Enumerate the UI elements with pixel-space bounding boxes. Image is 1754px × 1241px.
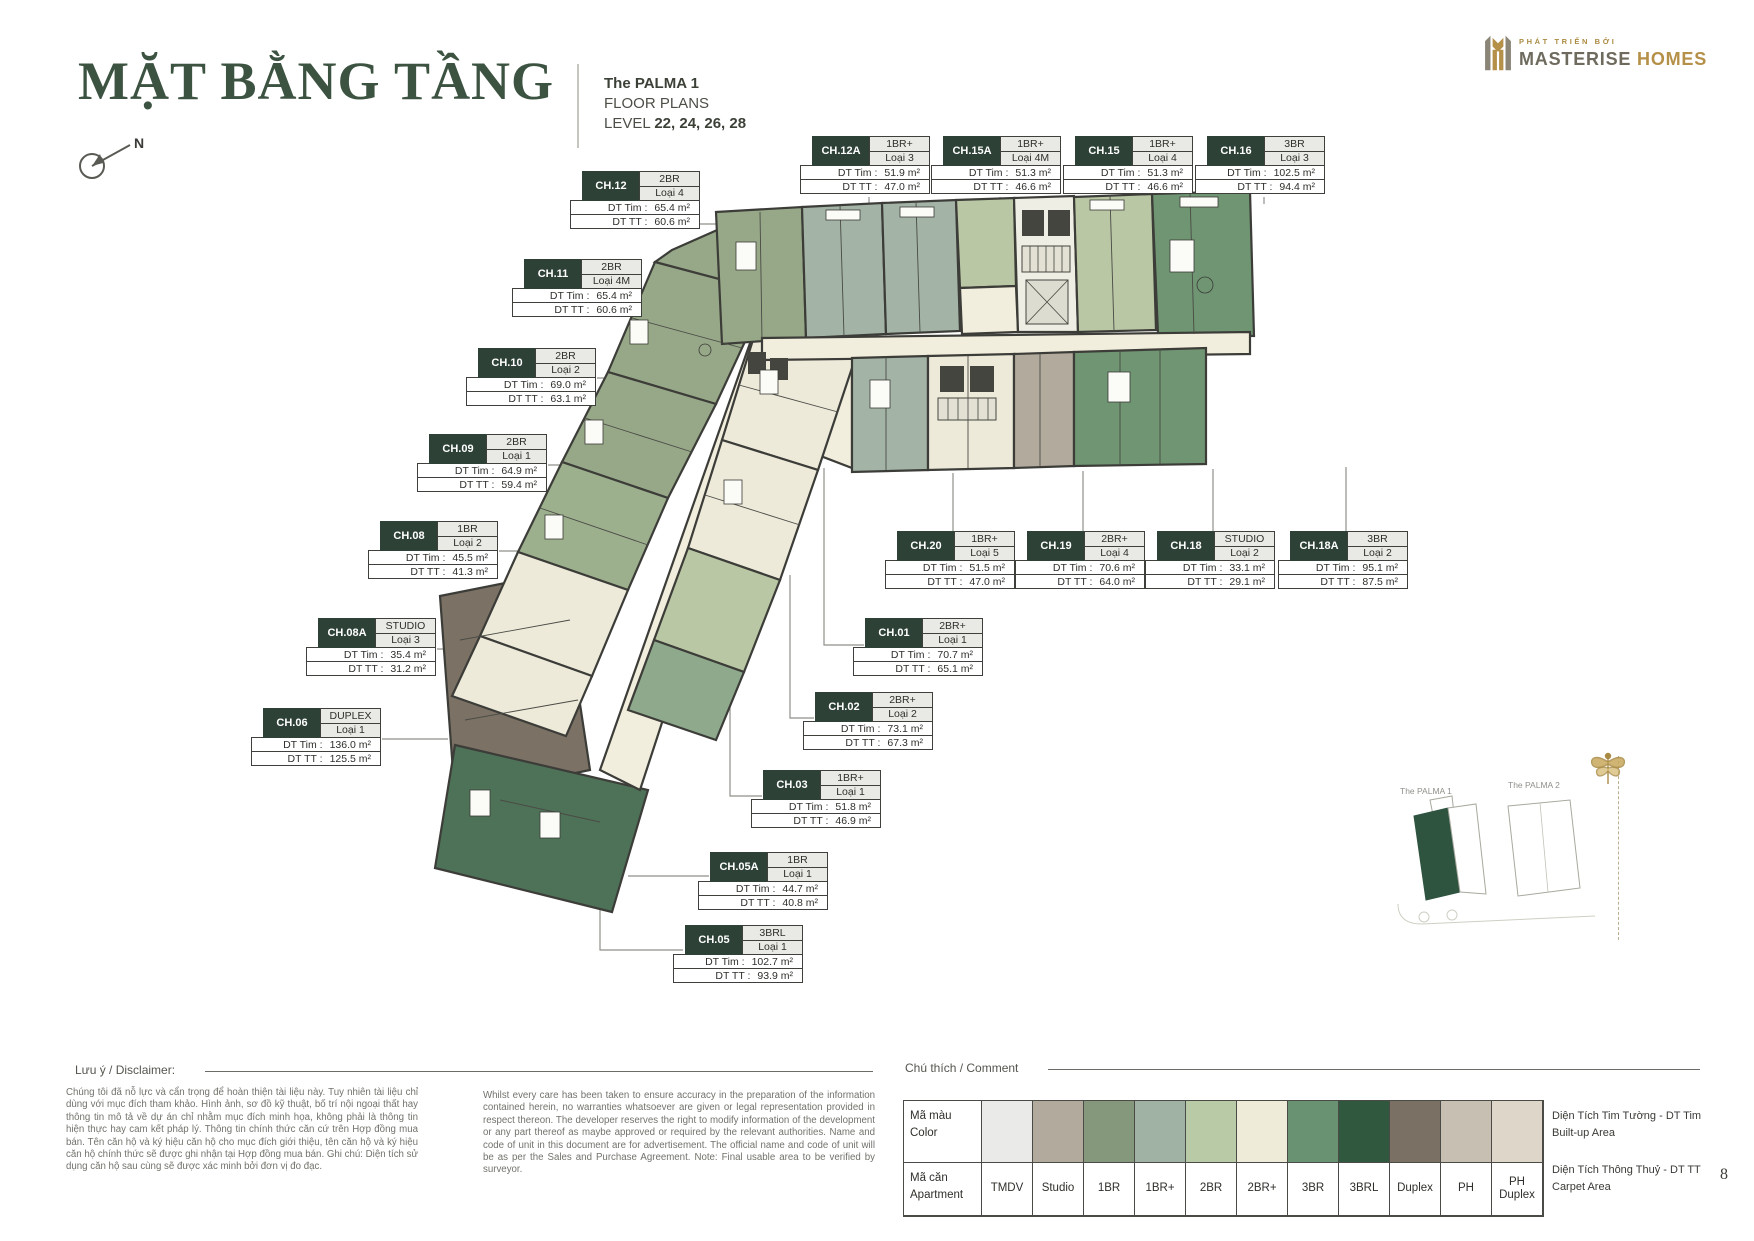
- dt-tim-value: 65.4 m²: [596, 290, 632, 302]
- unit-variant: Loại 5: [954, 546, 1015, 562]
- dt-tim-label: DT Tim :: [891, 649, 930, 661]
- unit-dt-tim-row: DT Tim : 35.4 m²: [306, 647, 436, 662]
- unit-dt-tim-row: DT Tim : 65.4 m²: [512, 288, 642, 303]
- dt-tt-label: DT TT :: [1237, 181, 1272, 193]
- unit-label-CH.05: CH.05 3BRL Loại 1 DT Tim : 102.7 m² DT T…: [685, 925, 803, 983]
- dt-tim-label: DT Tim :: [969, 167, 1008, 179]
- unit-variant: Loại 1: [820, 785, 881, 801]
- dt-tt-value: 46.6 m²: [1015, 181, 1051, 193]
- dt-tim-label: DT Tim :: [455, 465, 494, 477]
- dt-tim-value: 33.1 m²: [1229, 562, 1265, 574]
- dt-tt-value: 59.4 m²: [501, 479, 537, 491]
- unit-label-CH.20: CH.20 1BR+ Loại 5 DT Tim : 51.5 m² DT TT…: [897, 531, 1015, 589]
- unit-dt-tt-row: DT TT : 47.0 m²: [885, 574, 1015, 589]
- unit-code: CH.02: [815, 692, 873, 722]
- unit-code: CH.05A: [710, 852, 768, 882]
- dt-tim-label: DT Tim :: [705, 956, 744, 968]
- dt-tt-label: DT TT :: [288, 753, 323, 765]
- unit-type: 2BR+: [1084, 531, 1145, 547]
- dt-tt-label: DT TT :: [1187, 576, 1222, 588]
- unit-dt-tt-row: DT TT : 40.8 m²: [698, 895, 828, 910]
- dt-tim-label: DT Tim :: [923, 562, 962, 574]
- unit-label-CH.02: CH.02 2BR+ Loại 2 DT Tim : 73.1 m² DT TT…: [815, 692, 933, 750]
- unit-type: 3BR: [1264, 136, 1325, 152]
- dt-tt-value: 60.6 m²: [654, 216, 690, 228]
- unit-code: CH.10: [478, 348, 536, 378]
- unit-dt-tim-row: DT Tim : 70.7 m²: [853, 647, 983, 662]
- dt-tim-value: 70.7 m²: [937, 649, 973, 661]
- unit-dt-tim-row: DT Tim : 51.3 m²: [931, 165, 1061, 180]
- unit-code: CH.11: [524, 259, 582, 289]
- unit-code: CH.12: [582, 171, 640, 201]
- unit-type: 2BR: [639, 171, 700, 187]
- unit-variant: Loại 3: [375, 633, 436, 649]
- dt-tt-value: 47.0 m²: [884, 181, 920, 193]
- dt-tim-label: DT Tim :: [504, 379, 543, 391]
- unit-type: 2BR+: [872, 692, 933, 708]
- unit-label-CH.10: CH.10 2BR Loại 2 DT Tim : 69.0 m² DT TT …: [478, 348, 596, 406]
- dt-tim-value: 35.4 m²: [390, 649, 426, 661]
- unit-code: CH.09: [429, 434, 487, 464]
- unit-variant: Loại 3: [1264, 151, 1325, 167]
- unit-type: 1BR+: [1000, 136, 1061, 152]
- dt-tt-value: 41.3 m²: [452, 566, 488, 578]
- unit-type: DUPLEX: [320, 708, 381, 724]
- dt-tt-label: DT TT :: [348, 663, 383, 675]
- unit-variant: Loại 2: [437, 536, 498, 552]
- dt-tt-value: 87.5 m²: [1362, 576, 1398, 588]
- dt-tim-label: DT Tim :: [1053, 562, 1092, 574]
- unit-dt-tim-row: DT Tim : 51.8 m²: [751, 799, 881, 814]
- unit-label-CH.06: CH.06 DUPLEX Loại 1 DT Tim : 136.0 m² DT…: [263, 708, 381, 766]
- dt-tim-label: DT Tim :: [406, 552, 445, 564]
- dt-tt-value: 46.6 m²: [1147, 181, 1183, 193]
- dt-tt-value: 29.1 m²: [1229, 576, 1265, 588]
- dt-tim-label: DT Tim :: [550, 290, 589, 302]
- dt-tt-value: 64.0 m²: [1099, 576, 1135, 588]
- unit-type: 1BR: [767, 852, 828, 868]
- unit-dt-tt-row: DT TT : 64.0 m²: [1015, 574, 1145, 589]
- unit-variant: Loại 4: [1132, 151, 1193, 167]
- unit-variant: Loại 2: [1214, 546, 1275, 562]
- unit-type: 3BRL: [742, 925, 803, 941]
- dt-tim-value: 69.0 m²: [550, 379, 586, 391]
- unit-dt-tt-row: DT TT : 94.4 m²: [1195, 179, 1325, 194]
- unit-variant: Loại 1: [767, 867, 828, 883]
- unit-dt-tim-row: DT Tim : 64.9 m²: [417, 463, 547, 478]
- dt-tt-value: 67.3 m²: [887, 737, 923, 749]
- unit-label-CH.19: CH.19 2BR+ Loại 4 DT Tim : 70.6 m² DT TT…: [1027, 531, 1145, 589]
- unit-label-CH.08: CH.08 1BR Loại 2 DT Tim : 45.5 m² DT TT …: [380, 521, 498, 579]
- dt-tim-value: 65.4 m²: [654, 202, 690, 214]
- dt-tt-label: DT TT :: [554, 304, 589, 316]
- unit-variant: Loại 4: [639, 186, 700, 202]
- dt-tim-label: DT Tim :: [841, 723, 880, 735]
- unit-type: 1BR+: [954, 531, 1015, 547]
- unit-dt-tt-row: DT TT : 87.5 m²: [1278, 574, 1408, 589]
- unit-dt-tim-row: DT Tim : 102.5 m²: [1195, 165, 1325, 180]
- dt-tim-value: 136.0 m²: [330, 739, 371, 751]
- dt-tt-label: DT TT :: [927, 576, 962, 588]
- dt-tt-label: DT TT :: [508, 393, 543, 405]
- unit-dt-tim-row: DT Tim : 136.0 m²: [251, 737, 381, 752]
- unit-dt-tim-row: DT Tim : 51.5 m²: [885, 560, 1015, 575]
- unit-type: STUDIO: [375, 618, 436, 634]
- unit-variant: Loại 3: [869, 151, 930, 167]
- dt-tim-value: 51.9 m²: [884, 167, 920, 179]
- dt-tt-label: DT TT :: [1057, 576, 1092, 588]
- unit-type: 1BR: [437, 521, 498, 537]
- unit-dt-tt-row: DT TT : 93.9 m²: [673, 968, 803, 983]
- unit-label-CH.12A: CH.12A 1BR+ Loại 3 DT Tim : 51.9 m² DT T…: [812, 136, 930, 194]
- dt-tt-value: 125.5 m²: [330, 753, 371, 765]
- unit-dt-tt-row: DT TT : 31.2 m²: [306, 661, 436, 676]
- unit-dt-tt-row: DT TT : 60.6 m²: [570, 214, 700, 229]
- dt-tim-value: 102.5 m²: [1274, 167, 1315, 179]
- unit-label-CH.05A: CH.05A 1BR Loại 1 DT Tim : 44.7 m² DT TT…: [710, 852, 828, 910]
- unit-code: CH.03: [763, 770, 821, 800]
- unit-type: 2BR: [486, 434, 547, 450]
- unit-label-CH.03: CH.03 1BR+ Loại 1 DT Tim : 51.8 m² DT TT…: [763, 770, 881, 828]
- dt-tim-value: 51.3 m²: [1015, 167, 1051, 179]
- unit-code: CH.01: [865, 618, 923, 648]
- dt-tim-value: 51.3 m²: [1147, 167, 1183, 179]
- dt-tt-label: DT TT :: [895, 663, 930, 675]
- unit-dt-tim-row: DT Tim : 102.7 m²: [673, 954, 803, 969]
- unit-code: CH.15: [1075, 136, 1133, 166]
- dt-tim-label: DT Tim :: [608, 202, 647, 214]
- unit-type: 1BR+: [820, 770, 881, 786]
- dt-tt-label: DT TT :: [793, 815, 828, 827]
- unit-dt-tt-row: DT TT : 46.6 m²: [1063, 179, 1193, 194]
- unit-variant: Loại 2: [1347, 546, 1408, 562]
- unit-label-CH.15A: CH.15A 1BR+ Loại 4M DT Tim : 51.3 m² DT …: [943, 136, 1061, 194]
- unit-dt-tim-row: DT Tim : 33.1 m²: [1145, 560, 1275, 575]
- unit-variant: Loại 4: [1084, 546, 1145, 562]
- unit-code: CH.12A: [812, 136, 870, 166]
- dt-tt-label: DT TT :: [1105, 181, 1140, 193]
- unit-code: CH.08: [380, 521, 438, 551]
- dt-tim-value: 73.1 m²: [887, 723, 923, 735]
- unit-type: 2BR: [581, 259, 642, 275]
- dt-tim-value: 44.7 m²: [782, 883, 818, 895]
- dt-tt-value: 60.6 m²: [596, 304, 632, 316]
- unit-dt-tt-row: DT TT : 59.4 m²: [417, 477, 547, 492]
- dt-tt-label: DT TT :: [459, 479, 494, 491]
- unit-variant: Loại 2: [535, 363, 596, 379]
- dt-tt-value: 46.9 m²: [835, 815, 871, 827]
- dt-tim-value: 64.9 m²: [501, 465, 537, 477]
- unit-code: CH.18A: [1290, 531, 1348, 561]
- unit-code: CH.18: [1157, 531, 1215, 561]
- unit-dt-tt-row: DT TT : 67.3 m²: [803, 735, 933, 750]
- dt-tim-value: 51.5 m²: [969, 562, 1005, 574]
- unit-code: CH.16: [1207, 136, 1265, 166]
- dt-tt-value: 65.1 m²: [937, 663, 973, 675]
- unit-dt-tt-row: DT TT : 29.1 m²: [1145, 574, 1275, 589]
- unit-dt-tim-row: DT Tim : 65.4 m²: [570, 200, 700, 215]
- unit-dt-tt-row: DT TT : 46.6 m²: [931, 179, 1061, 194]
- unit-label-CH.11: CH.11 2BR Loại 4M DT Tim : 65.4 m² DT TT…: [524, 259, 642, 317]
- unit-label-CH.09: CH.09 2BR Loại 1 DT Tim : 64.9 m² DT TT …: [429, 434, 547, 492]
- dt-tt-label: DT TT :: [410, 566, 445, 578]
- unit-dt-tim-row: DT Tim : 70.6 m²: [1015, 560, 1145, 575]
- dt-tt-label: DT TT :: [715, 970, 750, 982]
- unit-code: CH.08A: [318, 618, 376, 648]
- unit-dt-tim-row: DT Tim : 44.7 m²: [698, 881, 828, 896]
- unit-code: CH.15A: [943, 136, 1001, 166]
- dt-tim-label: DT Tim :: [838, 167, 877, 179]
- unit-dt-tim-row: DT Tim : 51.9 m²: [800, 165, 930, 180]
- unit-label-CH.15: CH.15 1BR+ Loại 4 DT Tim : 51.3 m² DT TT…: [1075, 136, 1193, 194]
- unit-dt-tt-row: DT TT : 125.5 m²: [251, 751, 381, 766]
- dt-tim-label: DT Tim :: [1316, 562, 1355, 574]
- unit-dt-tim-row: DT Tim : 69.0 m²: [466, 377, 596, 392]
- dt-tt-value: 94.4 m²: [1279, 181, 1315, 193]
- unit-label-CH.16: CH.16 3BR Loại 3 DT Tim : 102.5 m² DT TT…: [1207, 136, 1325, 194]
- dt-tim-label: DT Tim :: [736, 883, 775, 895]
- unit-label-CH.18A: CH.18A 3BR Loại 2 DT Tim : 95.1 m² DT TT…: [1290, 531, 1408, 589]
- floor-plan-page: MẶT BẰNG TẦNG The PALMA 1 FLOOR PLANS LE…: [0, 0, 1754, 1241]
- unit-dt-tt-row: DT TT : 41.3 m²: [368, 564, 498, 579]
- dt-tim-value: 102.7 m²: [752, 956, 793, 968]
- dt-tim-label: DT Tim :: [1227, 167, 1266, 179]
- unit-code: CH.20: [897, 531, 955, 561]
- dt-tt-label: DT TT :: [740, 897, 775, 909]
- dt-tt-label: DT TT :: [612, 216, 647, 228]
- unit-variant: Loại 1: [486, 449, 547, 465]
- unit-variant: Loại 4M: [581, 274, 642, 290]
- unit-type: 3BR: [1347, 531, 1408, 547]
- unit-type: 2BR+: [922, 618, 983, 634]
- unit-variant: Loại 1: [922, 633, 983, 649]
- dt-tt-value: 93.9 m²: [757, 970, 793, 982]
- unit-code: CH.19: [1027, 531, 1085, 561]
- dt-tim-value: 45.5 m²: [452, 552, 488, 564]
- unit-type: STUDIO: [1214, 531, 1275, 547]
- unit-label-CH.18: CH.18 STUDIO Loại 2 DT Tim : 33.1 m² DT …: [1157, 531, 1275, 589]
- unit-variant: Loại 4M: [1000, 151, 1061, 167]
- dt-tim-label: DT Tim :: [789, 801, 828, 813]
- unit-code: CH.05: [685, 925, 743, 955]
- dt-tt-label: DT TT :: [1320, 576, 1355, 588]
- dt-tt-label: DT TT :: [845, 737, 880, 749]
- dt-tim-label: DT Tim :: [1183, 562, 1222, 574]
- unit-variant: Loại 1: [742, 940, 803, 956]
- unit-code: CH.06: [263, 708, 321, 738]
- unit-dt-tt-row: DT TT : 63.1 m²: [466, 391, 596, 406]
- dt-tt-value: 63.1 m²: [550, 393, 586, 405]
- dt-tim-value: 95.1 m²: [1362, 562, 1398, 574]
- unit-dt-tt-row: DT TT : 60.6 m²: [512, 302, 642, 317]
- unit-dt-tim-row: DT Tim : 73.1 m²: [803, 721, 933, 736]
- unit-variant: Loại 2: [872, 707, 933, 723]
- unit-type: 1BR+: [869, 136, 930, 152]
- dt-tt-value: 31.2 m²: [390, 663, 426, 675]
- dt-tim-label: DT Tim :: [283, 739, 322, 751]
- unit-dt-tt-row: DT TT : 46.9 m²: [751, 813, 881, 828]
- dt-tt-value: 40.8 m²: [782, 897, 818, 909]
- unit-dt-tim-row: DT Tim : 51.3 m²: [1063, 165, 1193, 180]
- unit-variant: Loại 1: [320, 723, 381, 739]
- dt-tt-value: 47.0 m²: [969, 576, 1005, 588]
- dt-tim-value: 70.6 m²: [1099, 562, 1135, 574]
- unit-type: 1BR+: [1132, 136, 1193, 152]
- unit-label-CH.12: CH.12 2BR Loại 4 DT Tim : 65.4 m² DT TT …: [582, 171, 700, 229]
- dt-tim-label: DT Tim :: [1101, 167, 1140, 179]
- unit-dt-tt-row: DT TT : 65.1 m²: [853, 661, 983, 676]
- dt-tt-label: DT TT :: [842, 181, 877, 193]
- dt-tim-value: 51.8 m²: [835, 801, 871, 813]
- unit-label-CH.01: CH.01 2BR+ Loại 1 DT Tim : 70.7 m² DT TT…: [865, 618, 983, 676]
- dt-tt-label: DT TT :: [973, 181, 1008, 193]
- unit-type: 2BR: [535, 348, 596, 364]
- unit-dt-tim-row: DT Tim : 45.5 m²: [368, 550, 498, 565]
- dt-tim-label: DT Tim :: [344, 649, 383, 661]
- unit-dt-tt-row: DT TT : 47.0 m²: [800, 179, 930, 194]
- unit-label-CH.08A: CH.08A STUDIO Loại 3 DT Tim : 35.4 m² DT…: [318, 618, 436, 676]
- unit-dt-tim-row: DT Tim : 95.1 m²: [1278, 560, 1408, 575]
